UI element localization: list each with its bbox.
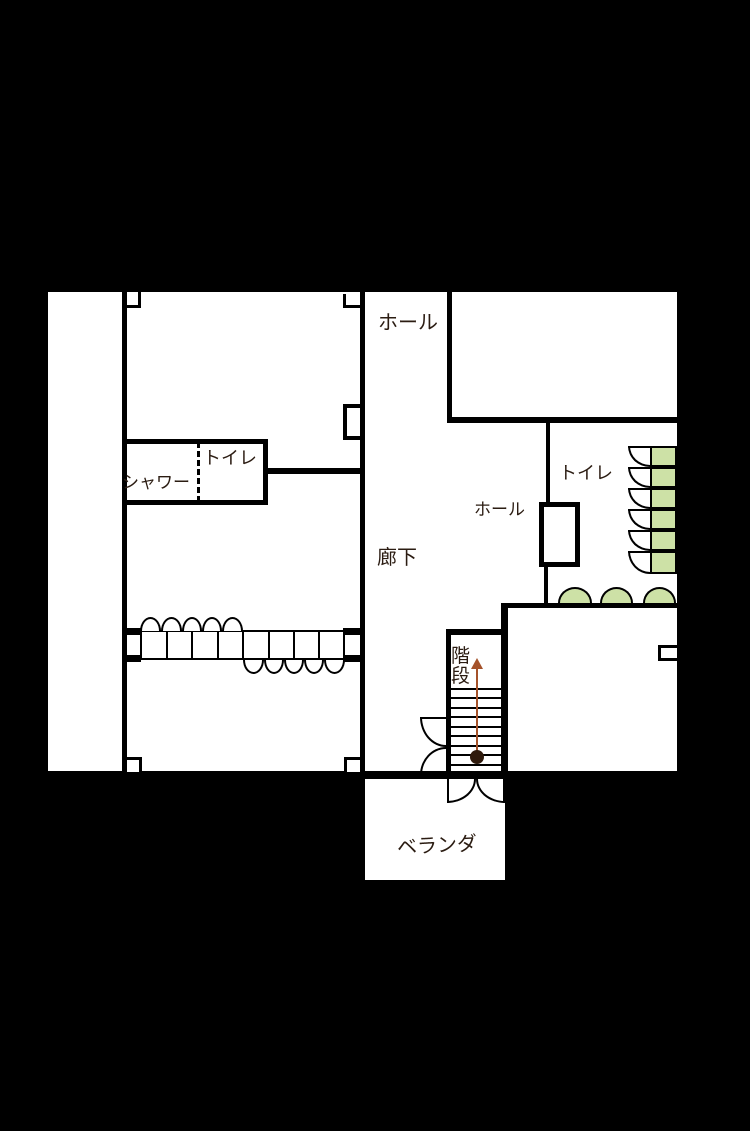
closet-shelf — [650, 467, 677, 488]
partition-divider — [318, 632, 320, 658]
toilet-right-label: トイレ — [559, 465, 613, 484]
hall-top-label: ホール — [378, 312, 438, 333]
partition-divider — [166, 632, 168, 658]
partition-divider — [217, 632, 219, 658]
toilet-left-label: トイレ — [203, 450, 257, 469]
pillar-marker — [344, 757, 360, 772]
hall-right-label: ホール — [474, 502, 525, 520]
stair-arrow-dot — [470, 750, 484, 764]
wall-above-elevator — [546, 423, 550, 503]
stair-tread — [451, 764, 501, 766]
wall-left — [122, 292, 127, 772]
shower-toilet-divider — [197, 442, 200, 502]
pillar-marker — [658, 645, 677, 661]
shower-label: シャワー — [122, 475, 190, 493]
partition-divider — [191, 632, 193, 658]
stair-up-arrow — [476, 666, 478, 757]
pillar-marker — [343, 294, 360, 308]
wall-corridor-left — [360, 292, 365, 779]
partition-endcap — [125, 628, 141, 635]
shaft-box — [539, 502, 580, 567]
wall-below-elevator — [544, 567, 548, 603]
partition-endcap — [343, 628, 362, 635]
floorplan-canvas: ホール トイレ シャワー 廊下 トイレ ホール 階段 ベランダ — [0, 0, 750, 1131]
closet-shelf — [650, 446, 677, 467]
partition-endcap — [343, 655, 362, 662]
pillar-marker — [127, 292, 141, 308]
closet-shelf — [650, 509, 677, 530]
stair-up-arrowhead — [471, 658, 483, 669]
partition-divider — [268, 632, 270, 658]
partition-endcap — [125, 655, 141, 662]
wall-lower-right-room-top — [505, 603, 677, 608]
pillar-marker — [127, 757, 142, 772]
partition-divider — [242, 632, 244, 658]
corridor-label: 廊下 — [377, 547, 417, 568]
veranda-label: ベランダ — [397, 833, 478, 858]
left-strip-area — [48, 292, 122, 772]
pillar-marker — [343, 404, 360, 440]
wall-upper-right-room-bottom — [447, 417, 677, 423]
wall-shower-room-right-ext — [268, 468, 365, 474]
left-block-area — [127, 292, 360, 772]
closet-shelf — [650, 530, 677, 551]
partition-divider — [293, 632, 295, 658]
wall-stair-top — [446, 629, 508, 635]
wall-upper-right-room-left — [447, 292, 452, 423]
closet-shelf — [650, 551, 677, 574]
closet-shelf — [650, 488, 677, 509]
stairs-label: 階段 — [451, 646, 472, 686]
wall-bottom — [48, 771, 677, 779]
